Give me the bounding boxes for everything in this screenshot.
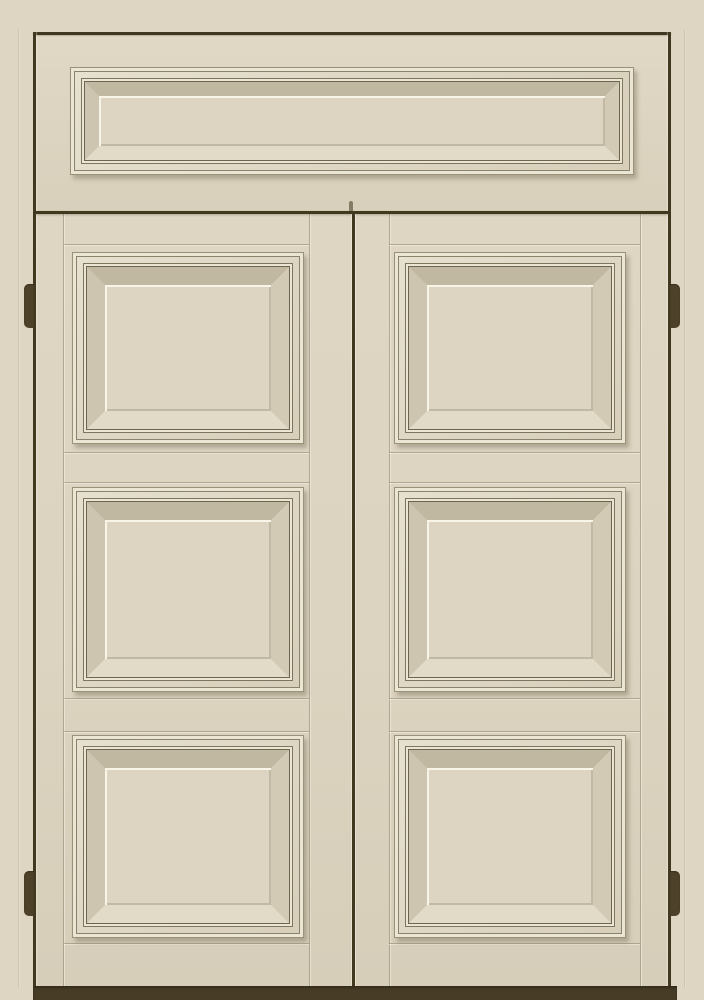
panel-molding-step xyxy=(398,491,622,688)
panel-field xyxy=(85,82,619,160)
panel-field xyxy=(409,502,611,677)
raised-panel xyxy=(394,487,626,692)
rail-seam xyxy=(64,698,309,699)
raised-panel xyxy=(394,735,626,938)
stile-seam xyxy=(309,214,310,986)
panel-field xyxy=(87,267,289,429)
rail-seam xyxy=(64,943,309,944)
hinge-top-left xyxy=(24,284,34,328)
panel-molding-step xyxy=(398,739,622,934)
rail-seam xyxy=(64,482,309,483)
panel-field xyxy=(87,750,289,923)
panel-molding-step xyxy=(76,739,300,934)
panel-molding-step xyxy=(405,746,615,927)
rail-seam xyxy=(389,731,640,732)
panel-molding-step xyxy=(76,491,300,688)
rail-seam xyxy=(389,943,640,944)
center-meeting-stile xyxy=(352,214,355,986)
panel-molding xyxy=(72,487,304,692)
stile-seam xyxy=(63,214,64,986)
panel-field xyxy=(409,267,611,429)
panel-molding xyxy=(394,252,626,444)
panel-molding xyxy=(72,252,304,444)
panel-bevel xyxy=(408,266,612,430)
transom-raised-panel xyxy=(70,67,634,175)
casing-groove-left xyxy=(18,30,20,988)
door-frame-left xyxy=(33,32,36,986)
door-frame-top xyxy=(33,32,671,35)
panel-molding xyxy=(72,735,304,938)
rail-seam xyxy=(64,452,309,453)
rail-seam xyxy=(389,482,640,483)
panel-molding-step xyxy=(83,498,293,681)
casing-groove-right xyxy=(684,30,686,988)
raised-panel xyxy=(72,487,304,692)
panel-molding-step xyxy=(74,71,630,171)
door-frame-right xyxy=(668,32,671,986)
stile-seam xyxy=(640,214,641,986)
panel-molding-step xyxy=(83,263,293,433)
panel-molding-step xyxy=(405,498,615,681)
raised-panel xyxy=(72,735,304,938)
hinge-bottom-right xyxy=(670,871,680,916)
panel-bevel xyxy=(86,266,290,430)
rail-seam xyxy=(389,698,640,699)
panel-field xyxy=(409,750,611,923)
panel-molding-step xyxy=(398,256,622,440)
rail-seam xyxy=(389,452,640,453)
hinge-top-right xyxy=(670,284,680,328)
panel-molding xyxy=(70,67,634,175)
transom-center-joint xyxy=(349,201,353,212)
panel-molding-step xyxy=(81,78,623,164)
panel-bevel xyxy=(86,501,290,678)
panel-molding-step xyxy=(405,263,615,433)
raised-panel xyxy=(394,252,626,444)
hinge-bottom-left xyxy=(24,871,34,916)
panel-molding-step xyxy=(83,746,293,927)
panel-bevel xyxy=(408,501,612,678)
threshold xyxy=(33,986,677,1000)
panel-molding xyxy=(394,487,626,692)
panel-field xyxy=(87,502,289,677)
panel-molding xyxy=(394,735,626,938)
rail-seam xyxy=(389,244,640,245)
panel-bevel xyxy=(86,749,290,924)
raised-panel xyxy=(72,252,304,444)
panel-bevel xyxy=(84,81,620,161)
panel-molding-step xyxy=(76,256,300,440)
stile-seam xyxy=(389,214,390,986)
panel-bevel xyxy=(408,749,612,924)
double-door-photo xyxy=(0,0,704,1000)
rail-seam xyxy=(64,731,309,732)
rail-seam xyxy=(64,244,309,245)
